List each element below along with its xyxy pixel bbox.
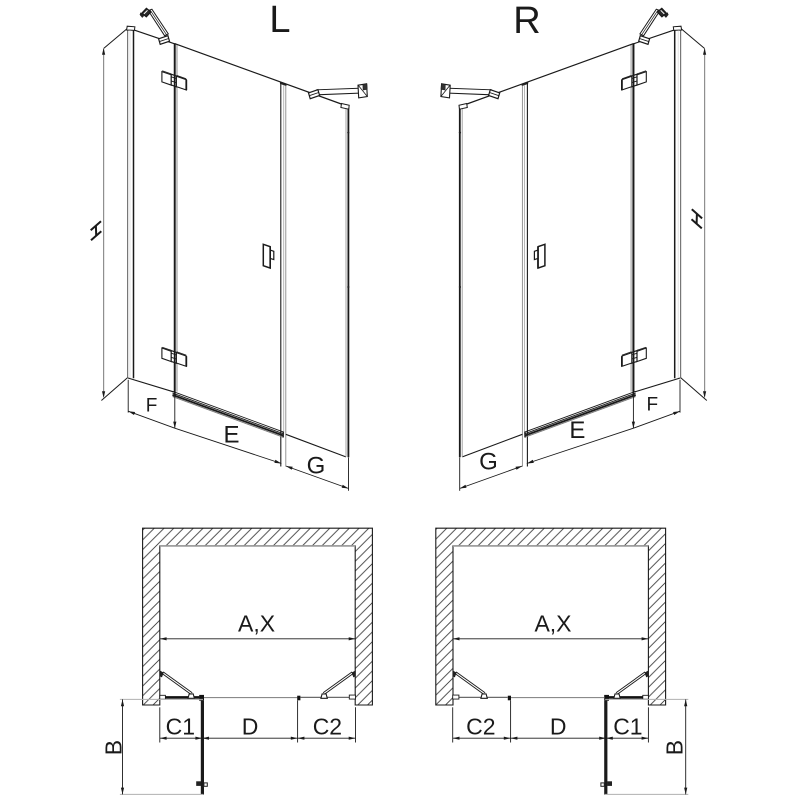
svg-text:A,X: A,X xyxy=(238,611,275,637)
svg-text:G: G xyxy=(479,449,498,476)
svg-text:G: G xyxy=(307,453,326,480)
svg-text:C1: C1 xyxy=(613,713,642,739)
svg-text:F: F xyxy=(646,394,658,415)
svg-text:C2: C2 xyxy=(466,713,495,739)
svg-text:R: R xyxy=(513,0,540,42)
svg-text:B: B xyxy=(661,740,687,755)
svg-text:F: F xyxy=(146,396,158,417)
svg-text:D: D xyxy=(242,713,259,739)
svg-text:B: B xyxy=(101,740,127,755)
svg-text:C2: C2 xyxy=(313,713,342,739)
svg-text:D: D xyxy=(550,713,567,739)
svg-text:E: E xyxy=(223,422,239,449)
svg-text:E: E xyxy=(569,417,585,444)
svg-text:C1: C1 xyxy=(166,713,195,739)
svg-text:L: L xyxy=(269,0,290,41)
svg-text:A,X: A,X xyxy=(534,611,571,637)
